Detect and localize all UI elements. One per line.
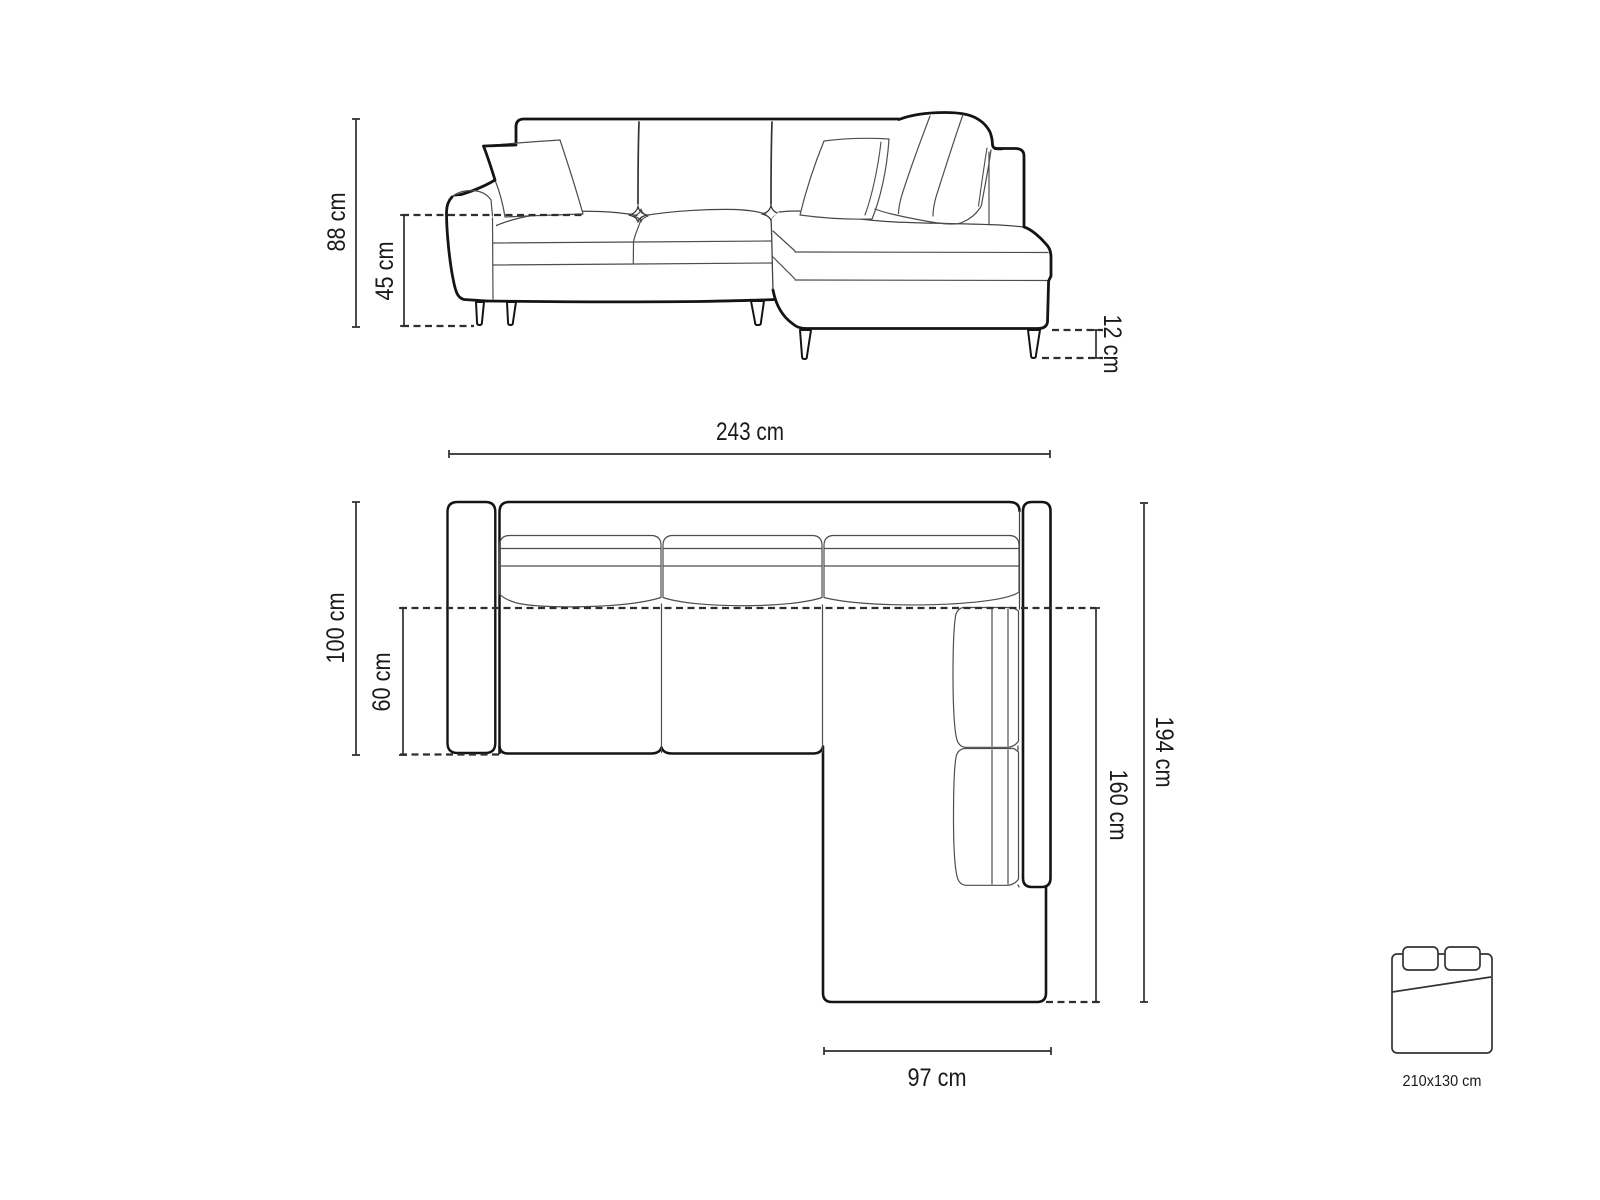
svg-text:97 cm: 97 cm bbox=[908, 1064, 967, 1092]
svg-text:100 cm: 100 cm bbox=[322, 593, 350, 664]
svg-text:194 cm: 194 cm bbox=[1150, 717, 1178, 788]
svg-text:243 cm: 243 cm bbox=[716, 418, 784, 446]
svg-text:60 cm: 60 cm bbox=[368, 653, 396, 712]
svg-text:12 cm: 12 cm bbox=[1098, 315, 1126, 374]
svg-text:160 cm: 160 cm bbox=[1104, 770, 1132, 841]
svg-text:210x130 cm: 210x130 cm bbox=[1403, 1073, 1482, 1090]
svg-text:45 cm: 45 cm bbox=[371, 242, 399, 301]
svg-text:88 cm: 88 cm bbox=[323, 193, 351, 252]
